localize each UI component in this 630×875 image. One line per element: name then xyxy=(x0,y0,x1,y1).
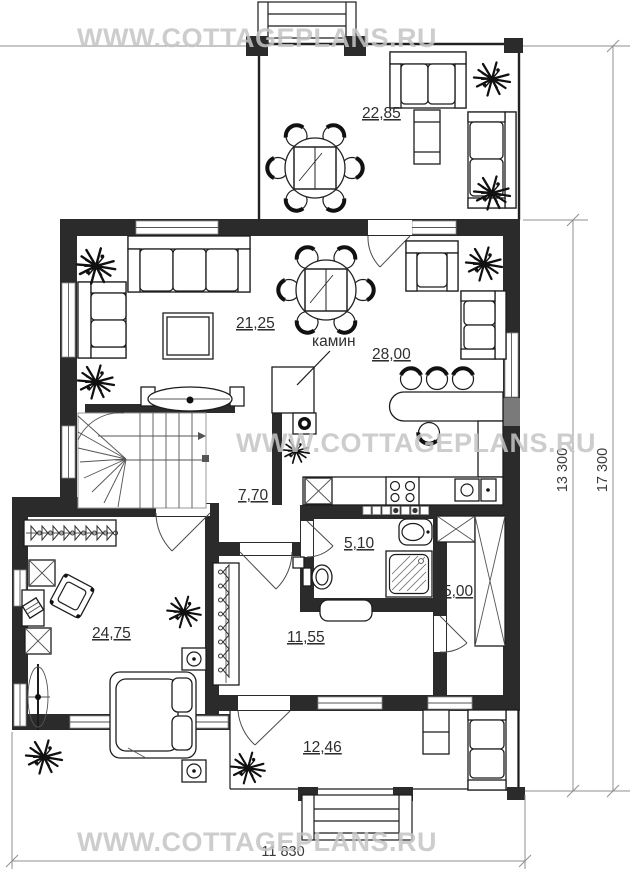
tile-strip xyxy=(363,507,429,515)
sofa xyxy=(390,52,466,108)
terrace-bottom xyxy=(230,710,525,840)
bathtub xyxy=(399,519,432,545)
room-label-terrace-top: 22,85 xyxy=(362,105,401,122)
watermark-middle: WWW.COTTAGEPLANS.RU xyxy=(236,428,596,458)
bed xyxy=(110,672,196,758)
shower xyxy=(386,551,432,597)
floor-plan-drawing: 22,85 21,25 28,00 7,70 5,10 5,00 24,75 1… xyxy=(0,0,630,875)
bar-stool xyxy=(453,368,474,389)
plant-icon xyxy=(26,741,62,774)
plant-icon xyxy=(167,597,201,628)
room-label-bathroom: 5,10 xyxy=(344,535,375,552)
sofa xyxy=(78,282,126,358)
nightstand xyxy=(182,648,206,670)
room-label-living: 21,25 xyxy=(236,315,275,332)
plant-icon xyxy=(466,248,502,281)
cabinet xyxy=(29,560,55,586)
sofa xyxy=(128,236,250,292)
sofa xyxy=(461,291,506,359)
storage-room xyxy=(437,516,505,646)
desk-chair xyxy=(49,573,95,619)
plant-icon xyxy=(231,753,265,784)
column xyxy=(504,38,523,53)
bench xyxy=(320,600,372,621)
terrace-top xyxy=(390,52,516,210)
side-table xyxy=(423,710,449,754)
room-label-kitchen: 28,00 xyxy=(372,346,411,363)
dining-table-main xyxy=(278,243,373,336)
toilet xyxy=(303,565,332,589)
bar-stool xyxy=(401,368,422,389)
sink xyxy=(455,479,496,501)
sofa xyxy=(468,710,518,790)
column xyxy=(507,787,525,800)
side-table xyxy=(414,110,440,164)
cabinet xyxy=(25,628,51,654)
room-label-corridor: 11,55 xyxy=(287,629,325,646)
dining-table-terrace xyxy=(267,121,362,214)
armchair xyxy=(406,241,458,291)
watermark-top: WWW.COTTAGEPLANS.RU xyxy=(77,23,437,53)
nightstand xyxy=(182,760,206,782)
room-label-storage: 5,00 xyxy=(443,583,474,600)
desk xyxy=(22,590,44,626)
room-label-hall: 7,70 xyxy=(238,487,269,504)
room-label-bedroom: 24,75 xyxy=(92,625,131,642)
plant-icon xyxy=(78,366,114,399)
stove xyxy=(386,477,419,505)
wardrobe-hangers-vertical xyxy=(213,563,239,685)
wardrobe-hangers-horizontal xyxy=(24,520,118,546)
floor-plan-page: 22,85 21,25 28,00 7,70 5,10 5,00 24,75 1… xyxy=(0,0,630,875)
room-label-terrace-bottom: 12,46 xyxy=(303,739,342,756)
coffee-table xyxy=(163,313,213,359)
bar-counter xyxy=(390,392,504,421)
fireplace-label: камин xyxy=(312,333,356,350)
living-room xyxy=(77,236,250,411)
wardrobe xyxy=(437,516,475,542)
bar-stool xyxy=(427,368,448,389)
staircase xyxy=(78,413,209,508)
dimension-overall-depth: 17 300 xyxy=(595,448,611,492)
plant-icon xyxy=(474,63,510,96)
wall-cabinet xyxy=(293,557,304,568)
watermark-bottom: WWW.COTTAGEPLANS.RU xyxy=(77,827,437,857)
bedroom xyxy=(22,560,206,782)
tv-icon xyxy=(187,397,194,404)
plant-icon xyxy=(77,248,115,283)
wardrobe xyxy=(475,516,505,646)
fridge xyxy=(305,478,332,504)
